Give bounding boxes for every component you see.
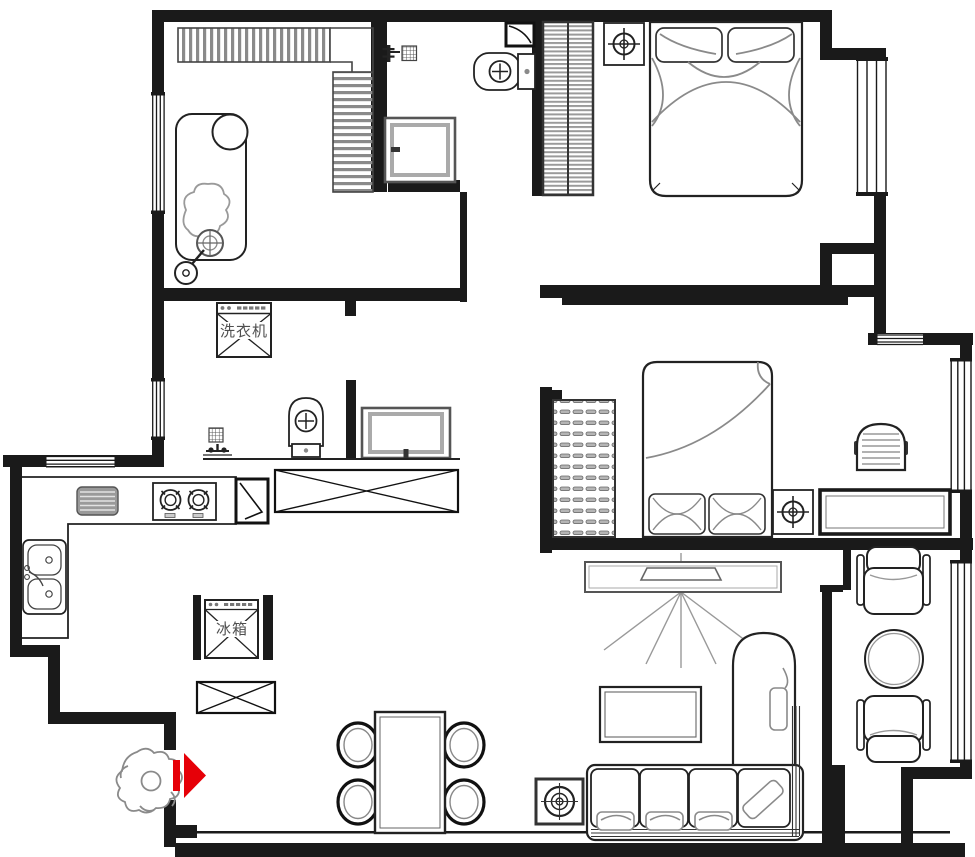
kitchen-door-leaf-icon — [236, 479, 268, 523]
window-second-bedroom-top — [874, 333, 927, 345]
hall-cabinet-icon — [275, 470, 458, 512]
dining-chair-icon — [444, 723, 484, 767]
pillow-icon — [656, 28, 722, 62]
chair-pillow-icon — [213, 115, 248, 150]
desk-chair-icon — [854, 424, 908, 470]
coffee-table-icon — [600, 687, 701, 742]
wardrobe-corner-icon — [330, 28, 373, 72]
refrigerator-icon: 冰箱 — [205, 600, 258, 658]
tv-icon — [641, 568, 721, 580]
window-laundry-left — [151, 378, 165, 440]
leisure-corner — [857, 547, 930, 762]
pillow-icon — [728, 28, 794, 62]
washing-machine-label: 洗衣机 — [220, 322, 268, 340]
armchair-icon — [857, 547, 930, 614]
cloakroom — [175, 28, 373, 284]
dining-chair-icon — [444, 780, 484, 824]
floor-drain-icon — [402, 46, 417, 61]
sliding-wardrobe-icon — [543, 22, 593, 195]
bathroom-door-leaf-icon — [506, 23, 534, 46]
air-conditioner-icon — [536, 779, 583, 824]
shoe-cabinet-icon — [197, 682, 275, 713]
bathroom — [383, 23, 536, 182]
dining-table-icon — [375, 712, 445, 833]
window-cloakroom-left — [151, 92, 165, 214]
gas-stove-icon — [153, 483, 216, 520]
window-master-bedroom-right — [856, 57, 888, 196]
double-bed-icon — [650, 22, 802, 196]
wardrobe-top-icon — [178, 28, 330, 62]
dining-chair-icon — [338, 780, 378, 824]
window-kitchen-top — [43, 455, 118, 467]
shelf-wardrobe-icon — [553, 400, 615, 537]
armchair-icon — [857, 696, 930, 762]
dining-set — [338, 712, 484, 833]
tap-icon — [203, 444, 232, 455]
floor-plan: 洗衣机 — [0, 0, 975, 857]
washing-machine-icon: 洗衣机 — [217, 303, 271, 357]
desk-icon — [820, 490, 950, 534]
second-bedroom — [553, 362, 950, 537]
toilet-icon — [289, 398, 323, 457]
dining-chair-icon — [338, 723, 378, 767]
double-sink-icon — [23, 540, 66, 614]
wardrobe-side-icon — [333, 72, 373, 192]
entrance-marker — [116, 749, 206, 813]
floor-drain-icon — [209, 428, 223, 442]
toilet-icon — [474, 53, 535, 90]
double-bed-icon — [643, 362, 772, 537]
window-living-right — [950, 560, 972, 763]
master-bedroom — [543, 22, 802, 196]
refrigerator-label: 冰箱 — [216, 620, 248, 638]
window-second-bedroom-right — [950, 358, 972, 493]
floor-plan-canvas: 洗衣机 — [0, 0, 975, 857]
round-table-icon — [865, 630, 923, 688]
nightstand-icon — [604, 23, 644, 65]
drainboard-icon — [77, 487, 118, 515]
bath-vanity-icon — [385, 118, 455, 182]
walls — [3, 10, 973, 857]
nightstand-icon — [773, 490, 813, 534]
laundry-vanity-icon — [362, 408, 450, 458]
